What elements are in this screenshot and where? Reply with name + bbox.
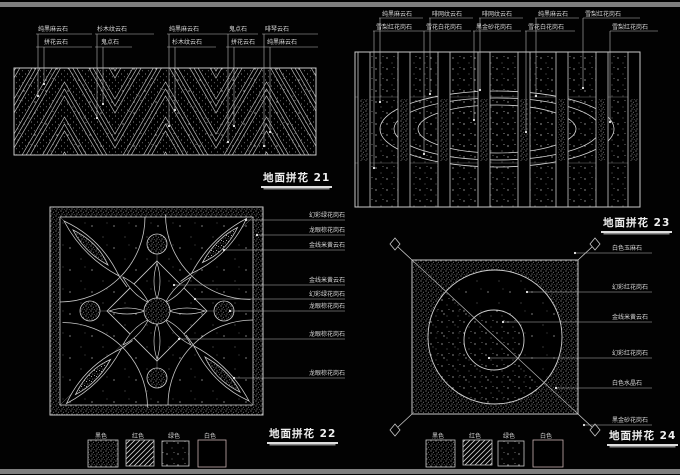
- legend-label: 白色: [204, 431, 216, 440]
- panel-23-drawing: [355, 18, 658, 207]
- material-label: 黑金砂花岗石: [612, 417, 648, 424]
- material-label: 雪梨红花岗石: [612, 24, 648, 31]
- drawing-layer: [0, 0, 680, 475]
- material-label: 龙眼棕花岗石: [309, 227, 345, 234]
- material-label: 鬼点石: [229, 26, 247, 33]
- material-label: 白色玉麻石: [612, 245, 642, 252]
- material-label: 龙眼棕花岗石: [309, 331, 345, 338]
- legend-label: 白色: [540, 431, 552, 440]
- legend-label: 红色: [469, 431, 481, 440]
- material-label: 雪花白花岗石: [426, 24, 462, 31]
- legend-label: 黑色: [95, 431, 107, 440]
- material-label: 啡网纹云石: [482, 11, 512, 18]
- legend-24-swatches: [426, 440, 563, 467]
- legend-label: 绿色: [503, 431, 515, 440]
- material-label: 纯黑麻云石: [382, 11, 412, 18]
- material-label: 拼花云石: [44, 39, 68, 46]
- material-label: 拼花云石: [231, 39, 255, 46]
- material-label: 幻彩绿花岗石: [309, 212, 345, 219]
- material-label: 黑金砂花岗石: [476, 24, 512, 31]
- material-label: 杉木纹云石: [97, 26, 127, 33]
- material-label: 鬼点石: [101, 39, 119, 46]
- material-label: 杉木纹云石: [172, 39, 202, 46]
- material-label: 纯黑麻云石: [538, 11, 568, 18]
- material-label: 雪花白花岗石: [528, 24, 564, 31]
- panel-title-24: 地面拼花 24: [607, 428, 678, 446]
- material-label: 金线米黄云石: [309, 242, 345, 249]
- panel-24-drawing: [390, 238, 652, 436]
- material-label: 纯黑麻云石: [169, 26, 199, 33]
- material-label: 龙眼棕花岗石: [309, 303, 345, 310]
- material-label: 啡琴云石: [265, 26, 289, 33]
- legend-22-swatches: [88, 440, 226, 467]
- legend-label: 黑色: [432, 431, 444, 440]
- material-label: 雪梨红花岗石: [376, 24, 412, 31]
- material-label: 纯黑麻云石: [38, 26, 68, 33]
- material-label: 纯黑麻云石: [267, 39, 297, 46]
- panel-title-23: 地面拼花 23: [601, 215, 672, 233]
- material-label: 金线米黄云石: [612, 314, 648, 321]
- legend-label: 红色: [132, 431, 144, 440]
- material-label: 雪梨红花岗石: [585, 11, 621, 18]
- material-label: 金线米黄云石: [309, 277, 345, 284]
- material-label: 幻彩绿花岗石: [309, 291, 345, 298]
- material-label: 幻彩红花岗石: [612, 284, 648, 291]
- material-label: 幻彩红花岗石: [612, 350, 648, 357]
- material-label: 龙眼棕花岗石: [309, 370, 345, 377]
- cad-canvas: 纯黑麻云石 杉木纹云石 纯黑麻云石 鬼点石 啡琴云石 拼花云石 鬼点石 杉木纹云…: [0, 0, 680, 475]
- panel-22-drawing: [50, 207, 345, 415]
- panel-title-21: 地面拼花 21: [261, 170, 332, 188]
- panel-title-22: 地面拼花 22: [267, 426, 338, 444]
- material-label: 啡网纹云石: [432, 11, 462, 18]
- material-label: 白色水晶石: [612, 380, 642, 387]
- legend-label: 绿色: [168, 431, 180, 440]
